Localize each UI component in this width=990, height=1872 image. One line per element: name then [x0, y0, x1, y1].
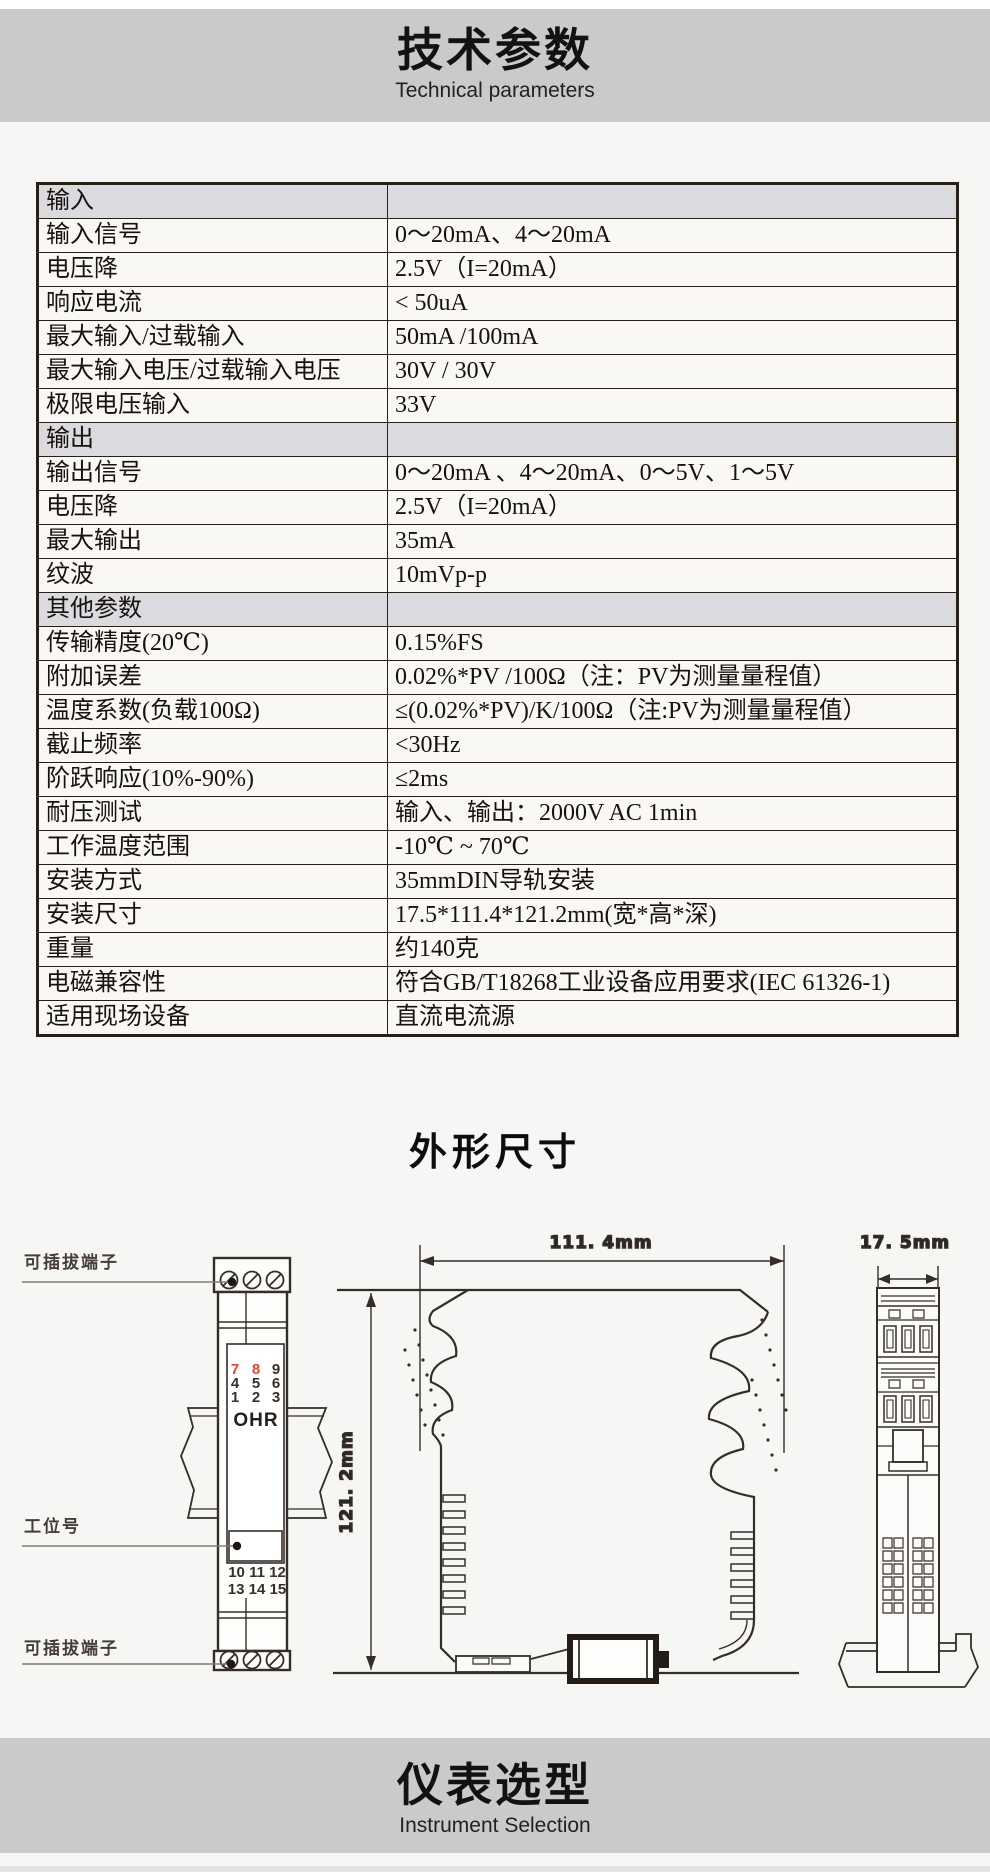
table-row: 最大输出35mA: [38, 525, 958, 559]
clip-link-line: [531, 1649, 569, 1659]
spec-value: 35mmDIN导轨安装: [388, 865, 958, 899]
spec-label: 最大输入电压/过载输入电压: [38, 355, 388, 389]
spec-label: 截止频率: [38, 729, 388, 763]
spec-label: 最大输入/过载输入: [38, 321, 388, 355]
width-dimension-label: 111. 4mm: [549, 1233, 652, 1253]
spec-table: 输入输入信号0～20mA、4～20mA电压降2.5V（I=20mA）响应电流< …: [36, 182, 959, 1037]
spec-label: 输出: [38, 423, 388, 457]
spec-value: [388, 184, 958, 219]
spec-value: < 50uA: [388, 287, 958, 321]
tag-number-label: 工位号: [24, 1516, 81, 1536]
spec-value: 2.5V（I=20mA）: [388, 253, 958, 287]
spec-label: 其他参数: [38, 593, 388, 627]
spec-label: 电压降: [38, 491, 388, 525]
table-section-row: 输出: [38, 423, 958, 457]
dimension-diagrams: 7 8 9 4 5 6 1 2 3 OHR 10 11 12 13 14 15 …: [0, 1230, 990, 1710]
table-row: 极限电压输入33V: [38, 389, 958, 423]
spec-label: 电压降: [38, 253, 388, 287]
terminal-number: 1: [231, 1389, 239, 1406]
table-row: 工作温度范围-10℃ ~ 70℃: [38, 831, 958, 865]
table-row: 截止频率<30Hz: [38, 729, 958, 763]
spec-value: 10mVp-p: [388, 559, 958, 593]
spec-label: 工作温度范围: [38, 831, 388, 865]
product-spec-page: 技术参数 Technical parameters 输入输入信号0～20mA、4…: [0, 0, 990, 1872]
page-subtitle: Technical parameters: [0, 80, 990, 101]
spec-label: 安装方式: [38, 865, 388, 899]
table-row: 耐压测试输入、输出：2000V AC 1min: [38, 797, 958, 831]
pluggable-terminal-label-top: 可插拔端子: [24, 1252, 119, 1272]
spec-value: 直流电流源: [388, 1001, 958, 1036]
spec-label: 输出信号: [38, 457, 388, 491]
dimensions-section-title: 外形尺寸: [0, 1134, 990, 1172]
bottom-edge-strip: [0, 1866, 990, 1872]
table-row: 重量约140克: [38, 933, 958, 967]
spec-value: 输入、输出：2000V AC 1min: [388, 797, 958, 831]
terminal-number: 2: [252, 1389, 260, 1406]
table-row: 电压降2.5V（I=20mA）: [38, 491, 958, 525]
pluggable-terminal-label-bottom: 可插拔端子: [24, 1638, 119, 1658]
terminal-number: 3: [272, 1389, 280, 1406]
table-row: 电磁兼容性符合GB/T18268工业设备应用要求(IEC 61326-1): [38, 967, 958, 1001]
spec-label: 极限电压输入: [38, 389, 388, 423]
side-dimensions: 111. 4mm 121. 2mm: [337, 1233, 784, 1670]
side-view-diagram: [333, 1290, 799, 1681]
din-clip-box: [570, 1637, 656, 1681]
spec-label: 附加误差: [38, 661, 388, 695]
spec-value: [388, 593, 958, 627]
spec-value: 50mA /100mA: [388, 321, 958, 355]
spec-label: 温度系数(负载100Ω): [38, 695, 388, 729]
table-row: 温度系数(负载100Ω)≤(0.02%*PV)/K/100Ω（注:PV为测量量程…: [38, 695, 958, 729]
spec-value: 0.02%*PV /100Ω（注：PV为测量量程值）: [388, 661, 958, 695]
vent-slots-left: [443, 1495, 465, 1614]
table-row: 输出信号0～20mA 、4～20mA、0～5V、1～5V: [38, 457, 958, 491]
table-section-row: 其他参数: [38, 593, 958, 627]
spec-value: [388, 423, 958, 457]
table-row: 响应电流< 50uA: [38, 287, 958, 321]
table-row: 安装方式35mmDIN导轨安装: [38, 865, 958, 899]
top-view-diagram: [839, 1288, 978, 1687]
spec-value: 17.5*111.4*121.2mm(宽*高*深): [388, 899, 958, 933]
spec-value: 约140克: [388, 933, 958, 967]
spec-value: 0～20mA 、4～20mA、0～5V、1～5V: [388, 457, 958, 491]
spec-value: <30Hz: [388, 729, 958, 763]
spec-value: 2.5V（I=20mA）: [388, 491, 958, 525]
spec-value: 0～20mA、4～20mA: [388, 219, 958, 253]
selection-title: 仪表选型: [0, 1738, 990, 1808]
spec-label: 适用现场设备: [38, 1001, 388, 1036]
spec-label: 纹波: [38, 559, 388, 593]
spec-value: 35mA: [388, 525, 958, 559]
technical-parameters-banner: 技术参数 Technical parameters: [0, 9, 990, 122]
front-view-diagram: [181, 1258, 332, 1670]
table-row: 传输精度(20℃)0.15%FS: [38, 627, 958, 661]
selection-subtitle: Instrument Selection: [0, 1815, 990, 1836]
spec-label: 电磁兼容性: [38, 967, 388, 1001]
spec-value: ≤(0.02%*PV)/K/100Ω（注:PV为测量量程值）: [388, 695, 958, 729]
table-row: 电压降2.5V（I=20mA）: [38, 253, 958, 287]
table-row: 安装尺寸17.5*111.4*121.2mm(宽*高*深): [38, 899, 958, 933]
spec-label: 安装尺寸: [38, 899, 388, 933]
table-row: 最大输入/过载输入50mA /100mA: [38, 321, 958, 355]
spec-label: 输入: [38, 184, 388, 219]
spec-value: -10℃ ~ 70℃: [388, 831, 958, 865]
side-left-profile: [430, 1290, 469, 1662]
table-row: 适用现场设备直流电流源: [38, 1001, 958, 1036]
spec-label: 最大输出: [38, 525, 388, 559]
table-row: 纹波10mVp-p: [38, 559, 958, 593]
spec-value: 30V / 30V: [388, 355, 958, 389]
brand-logo-text: OHR: [233, 1410, 278, 1431]
top-view-dimension: 17. 5mm: [860, 1233, 950, 1288]
spec-value: 0.15%FS: [388, 627, 958, 661]
table-section-row: 输入: [38, 184, 958, 219]
terminal-number-row: 13 14 15: [228, 1581, 286, 1598]
spec-table-body: 输入输入信号0～20mA、4～20mA电压降2.5V（I=20mA）响应电流< …: [38, 184, 958, 1036]
leader-dot: [233, 1542, 241, 1550]
hatch-dots: [403, 1318, 787, 1471]
table-row: 阶跃响应(10%-90%)≤2ms: [38, 763, 958, 797]
page-title: 技术参数: [0, 9, 990, 73]
terminal-number-row: 10 11 12: [228, 1564, 286, 1581]
spec-label: 阶跃响应(10%-90%): [38, 763, 388, 797]
table-row: 输入信号0～20mA、4～20mA: [38, 219, 958, 253]
top-margin: [0, 0, 990, 9]
spec-label: 输入信号: [38, 219, 388, 253]
instrument-selection-banner: 仪表选型 Instrument Selection: [0, 1738, 990, 1853]
din-clip-tab: [656, 1651, 669, 1668]
spec-label: 传输精度(20℃): [38, 627, 388, 661]
height-dimension-label: 121. 2mm: [337, 1430, 357, 1533]
spec-label: 重量: [38, 933, 388, 967]
table-row: 最大输入电压/过载输入电压30V / 30V: [38, 355, 958, 389]
depth-dimension-label: 17. 5mm: [860, 1233, 950, 1253]
spec-value: 33V: [388, 389, 958, 423]
spec-label: 响应电流: [38, 287, 388, 321]
table-row: 附加误差0.02%*PV /100Ω（注：PV为测量量程值）: [38, 661, 958, 695]
spec-value: 符合GB/T18268工业设备应用要求(IEC 61326-1): [388, 967, 958, 1001]
leader-dot: [227, 1660, 235, 1668]
spec-label: 耐压测试: [38, 797, 388, 831]
vent-slots-right: [731, 1532, 754, 1619]
side-right-profile: [709, 1312, 768, 1660]
leader-dot: [228, 1278, 236, 1286]
spec-value: ≤2ms: [388, 763, 958, 797]
